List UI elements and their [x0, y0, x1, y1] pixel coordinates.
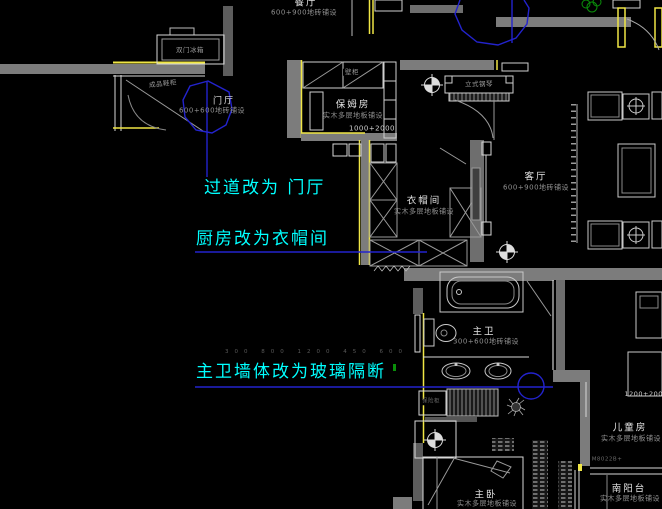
room-label-living: 客厅	[524, 172, 547, 182]
cad-floorplan-viewport[interactable]: 餐厅 600+900地砖铺设 双门冰箱 成品鞋柜 门厅 600+600地砖铺设 …	[0, 0, 662, 509]
finish-label-master-bath: 300+600地砖铺设	[453, 339, 519, 346]
faint-dimension-row: 300 800 1200 450 600	[225, 349, 408, 355]
room-label-master: 主卧	[474, 490, 497, 500]
annotation-kitchen: 厨房改为衣帽间	[196, 229, 329, 249]
room-label-master-bath: 主卫	[472, 327, 495, 337]
dim-label-nanny: 1000+2000	[349, 126, 395, 133]
finish-label-children: 实木多层地板铺设	[601, 436, 661, 443]
door-code-label: M8022B+	[592, 457, 623, 463]
fixture-label-wall-cabinet: 壁柜	[343, 69, 361, 76]
finish-label-balcony: 实木多层地板铺设	[600, 496, 660, 503]
finish-label-living: 600+900地砖铺设	[503, 185, 569, 192]
room-label-entry: 门厅	[213, 98, 235, 107]
annotation-bath: 主卫墙体改为玻璃隔断	[196, 362, 386, 382]
finish-label-entry: 600+600地砖铺设	[179, 108, 245, 115]
finish-label-nanny: 实木多层地板铺设	[323, 113, 383, 120]
lamp-symbol	[507, 398, 525, 416]
room-label-nanny: 保姆房	[336, 100, 371, 110]
room-label-children: 儿童房	[613, 423, 648, 433]
annotation-corridor: 过道改为 门厅	[204, 178, 325, 198]
room-label-balcony: 南阳台	[612, 484, 647, 494]
fixture-label-cabinet: 保险柜	[420, 399, 442, 405]
room-label-cloak: 衣帽间	[407, 196, 442, 206]
fixture-label-piano: 立式钢琴	[463, 81, 495, 88]
walls	[0, 0, 662, 509]
finish-label-cloak: 实木多层地板铺设	[394, 209, 454, 216]
finish-label-dining: 600+900地砖铺设	[271, 10, 337, 17]
dim-label-children: 1200+2000	[624, 391, 662, 398]
room-label-dining: 餐厅	[294, 0, 317, 8]
floorplan-linework	[0, 0, 662, 509]
finish-label-master: 实木多层地板铺设	[457, 501, 517, 508]
fixture-label-fridge: 双门冰箱	[176, 47, 204, 54]
